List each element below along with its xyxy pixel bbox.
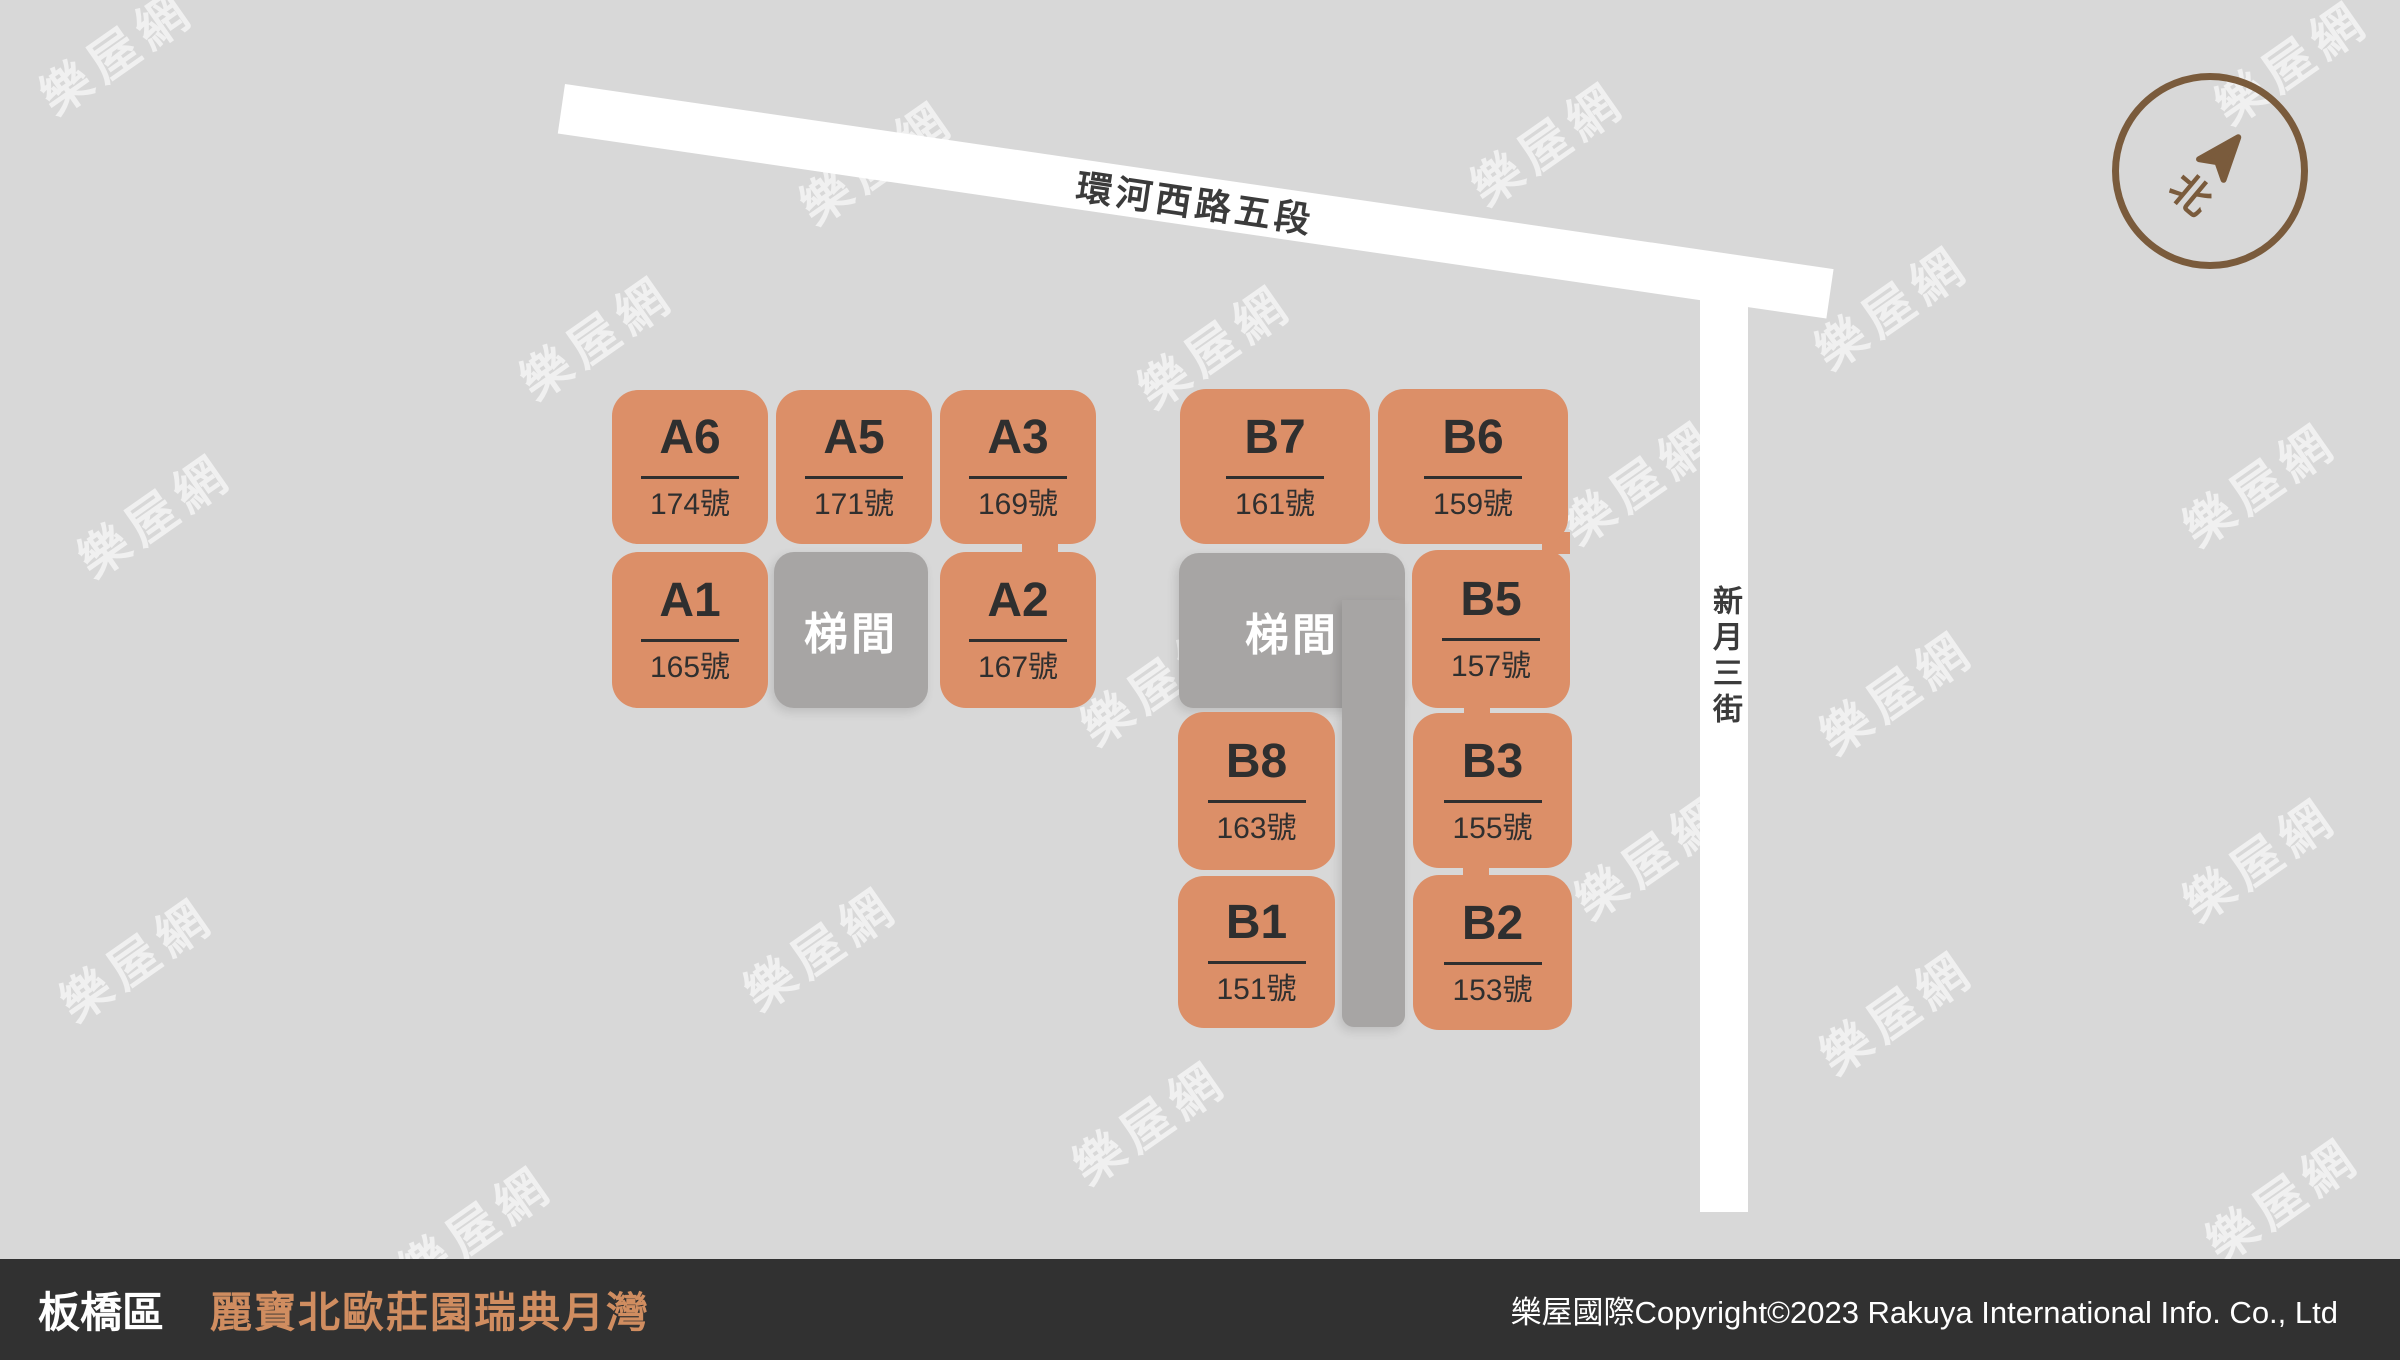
- unit-label: A5: [823, 414, 884, 462]
- unit-block-a3[interactable]: A3169號: [940, 390, 1096, 544]
- unit-number: 167號: [978, 653, 1058, 683]
- unit-number: 159號: [1433, 490, 1513, 520]
- unit-divider: [1442, 638, 1540, 641]
- unit-number: 171號: [814, 490, 894, 520]
- unit-divider: [1444, 800, 1542, 803]
- unit-number: 163號: [1216, 814, 1296, 844]
- unit-divider: [969, 639, 1067, 642]
- stairwell-b-label: 梯間: [1245, 599, 1339, 663]
- stairwell-b-corridor: [1342, 600, 1405, 1027]
- unit-number: 157號: [1451, 652, 1531, 682]
- unit-number: 165號: [650, 653, 730, 683]
- unit-block-b1[interactable]: B1151號: [1178, 876, 1335, 1028]
- unit-label: A3: [987, 414, 1048, 462]
- watermark-text: 樂屋網: [61, 434, 245, 593]
- unit-label: B6: [1442, 414, 1503, 462]
- unit-divider: [805, 476, 903, 479]
- unit-block-b6[interactable]: B6159號: [1378, 389, 1568, 544]
- unit-block-b8[interactable]: B8163號: [1178, 712, 1335, 870]
- unit-label: A2: [987, 577, 1048, 625]
- unit-block-b3[interactable]: B3155號: [1413, 713, 1572, 868]
- footer-bar: 板橋區 麗寶北歐莊園瑞典月灣 樂屋國際Copyright©2023 Rakuya…: [0, 1259, 2400, 1360]
- watermark-text: 樂屋網: [1803, 611, 1987, 770]
- watermark-text: 樂屋網: [727, 867, 911, 1026]
- watermark-text: 樂屋網: [1803, 931, 1987, 1090]
- unit-label: B3: [1462, 738, 1523, 786]
- footer-copyright: 樂屋國際Copyright©2023 Rakuya International …: [1510, 1287, 2338, 1332]
- unit-divider: [641, 639, 739, 642]
- compass-inner: 北: [2155, 113, 2265, 228]
- unit-block-a5[interactable]: A5171號: [776, 390, 932, 544]
- stairwell-a-label: 梯間: [804, 598, 898, 662]
- unit-label: B1: [1226, 899, 1287, 947]
- road-huanhe-west-rd: 環河西路五段: [558, 84, 1834, 319]
- unit-divider: [1208, 800, 1306, 803]
- road-xinyue-3rd-st: 新月三街: [1700, 265, 1748, 1212]
- watermark-text: 樂屋網: [23, 0, 207, 129]
- watermark-text: 樂屋網: [2166, 403, 2350, 562]
- stairwell-a: 梯間: [774, 552, 928, 708]
- footer-project-name: 麗寶北歐莊園瑞典月灣: [210, 1279, 650, 1340]
- unit-block-b5[interactable]: B5157號: [1412, 550, 1570, 708]
- unit-label: B2: [1462, 900, 1523, 948]
- unit-divider: [1444, 962, 1542, 965]
- unit-block-a6[interactable]: A6174號: [612, 390, 768, 544]
- unit-divider: [969, 476, 1067, 479]
- footer-district: 板橋區: [38, 1279, 164, 1340]
- road-huanhe-label: 環河西路五段: [1073, 158, 1318, 244]
- watermark-text: 樂屋網: [1454, 62, 1638, 221]
- unit-number: 153號: [1452, 976, 1532, 1006]
- unit-block-a1[interactable]: A1165號: [612, 552, 768, 708]
- unit-divider: [641, 476, 739, 479]
- unit-divider: [1424, 476, 1522, 479]
- watermark-text: 樂屋網: [43, 878, 227, 1037]
- unit-divider: [1208, 961, 1306, 964]
- unit-number: 161號: [1235, 490, 1315, 520]
- unit-number: 169號: [978, 490, 1058, 520]
- unit-block-a2[interactable]: A2167號: [940, 552, 1096, 708]
- unit-number: 174號: [650, 490, 730, 520]
- unit-label: A1: [659, 577, 720, 625]
- unit-block-b2[interactable]: B2153號: [1413, 875, 1572, 1030]
- unit-divider: [1226, 476, 1324, 479]
- site-map-canvas: 樂屋網樂屋網樂屋網樂屋網樂屋網樂屋網樂屋網樂屋網樂屋網樂屋網樂屋網樂屋網樂屋網樂…: [0, 0, 2400, 1360]
- watermark-text: 樂屋網: [2166, 778, 2350, 937]
- unit-number: 151號: [1216, 975, 1296, 1005]
- unit-label: B5: [1460, 576, 1521, 624]
- watermark-text: 樂屋網: [2189, 1118, 2373, 1277]
- watermark-text: 樂屋網: [1056, 1041, 1240, 1200]
- unit-block-b7[interactable]: B7161號: [1180, 389, 1370, 544]
- compass: 北: [2112, 73, 2308, 269]
- unit-label: B8: [1226, 738, 1287, 786]
- unit-label: B7: [1244, 414, 1305, 462]
- unit-number: 155號: [1452, 814, 1532, 844]
- unit-label: A6: [659, 414, 720, 462]
- road-xinyue-label: 新月三街: [1700, 585, 1748, 729]
